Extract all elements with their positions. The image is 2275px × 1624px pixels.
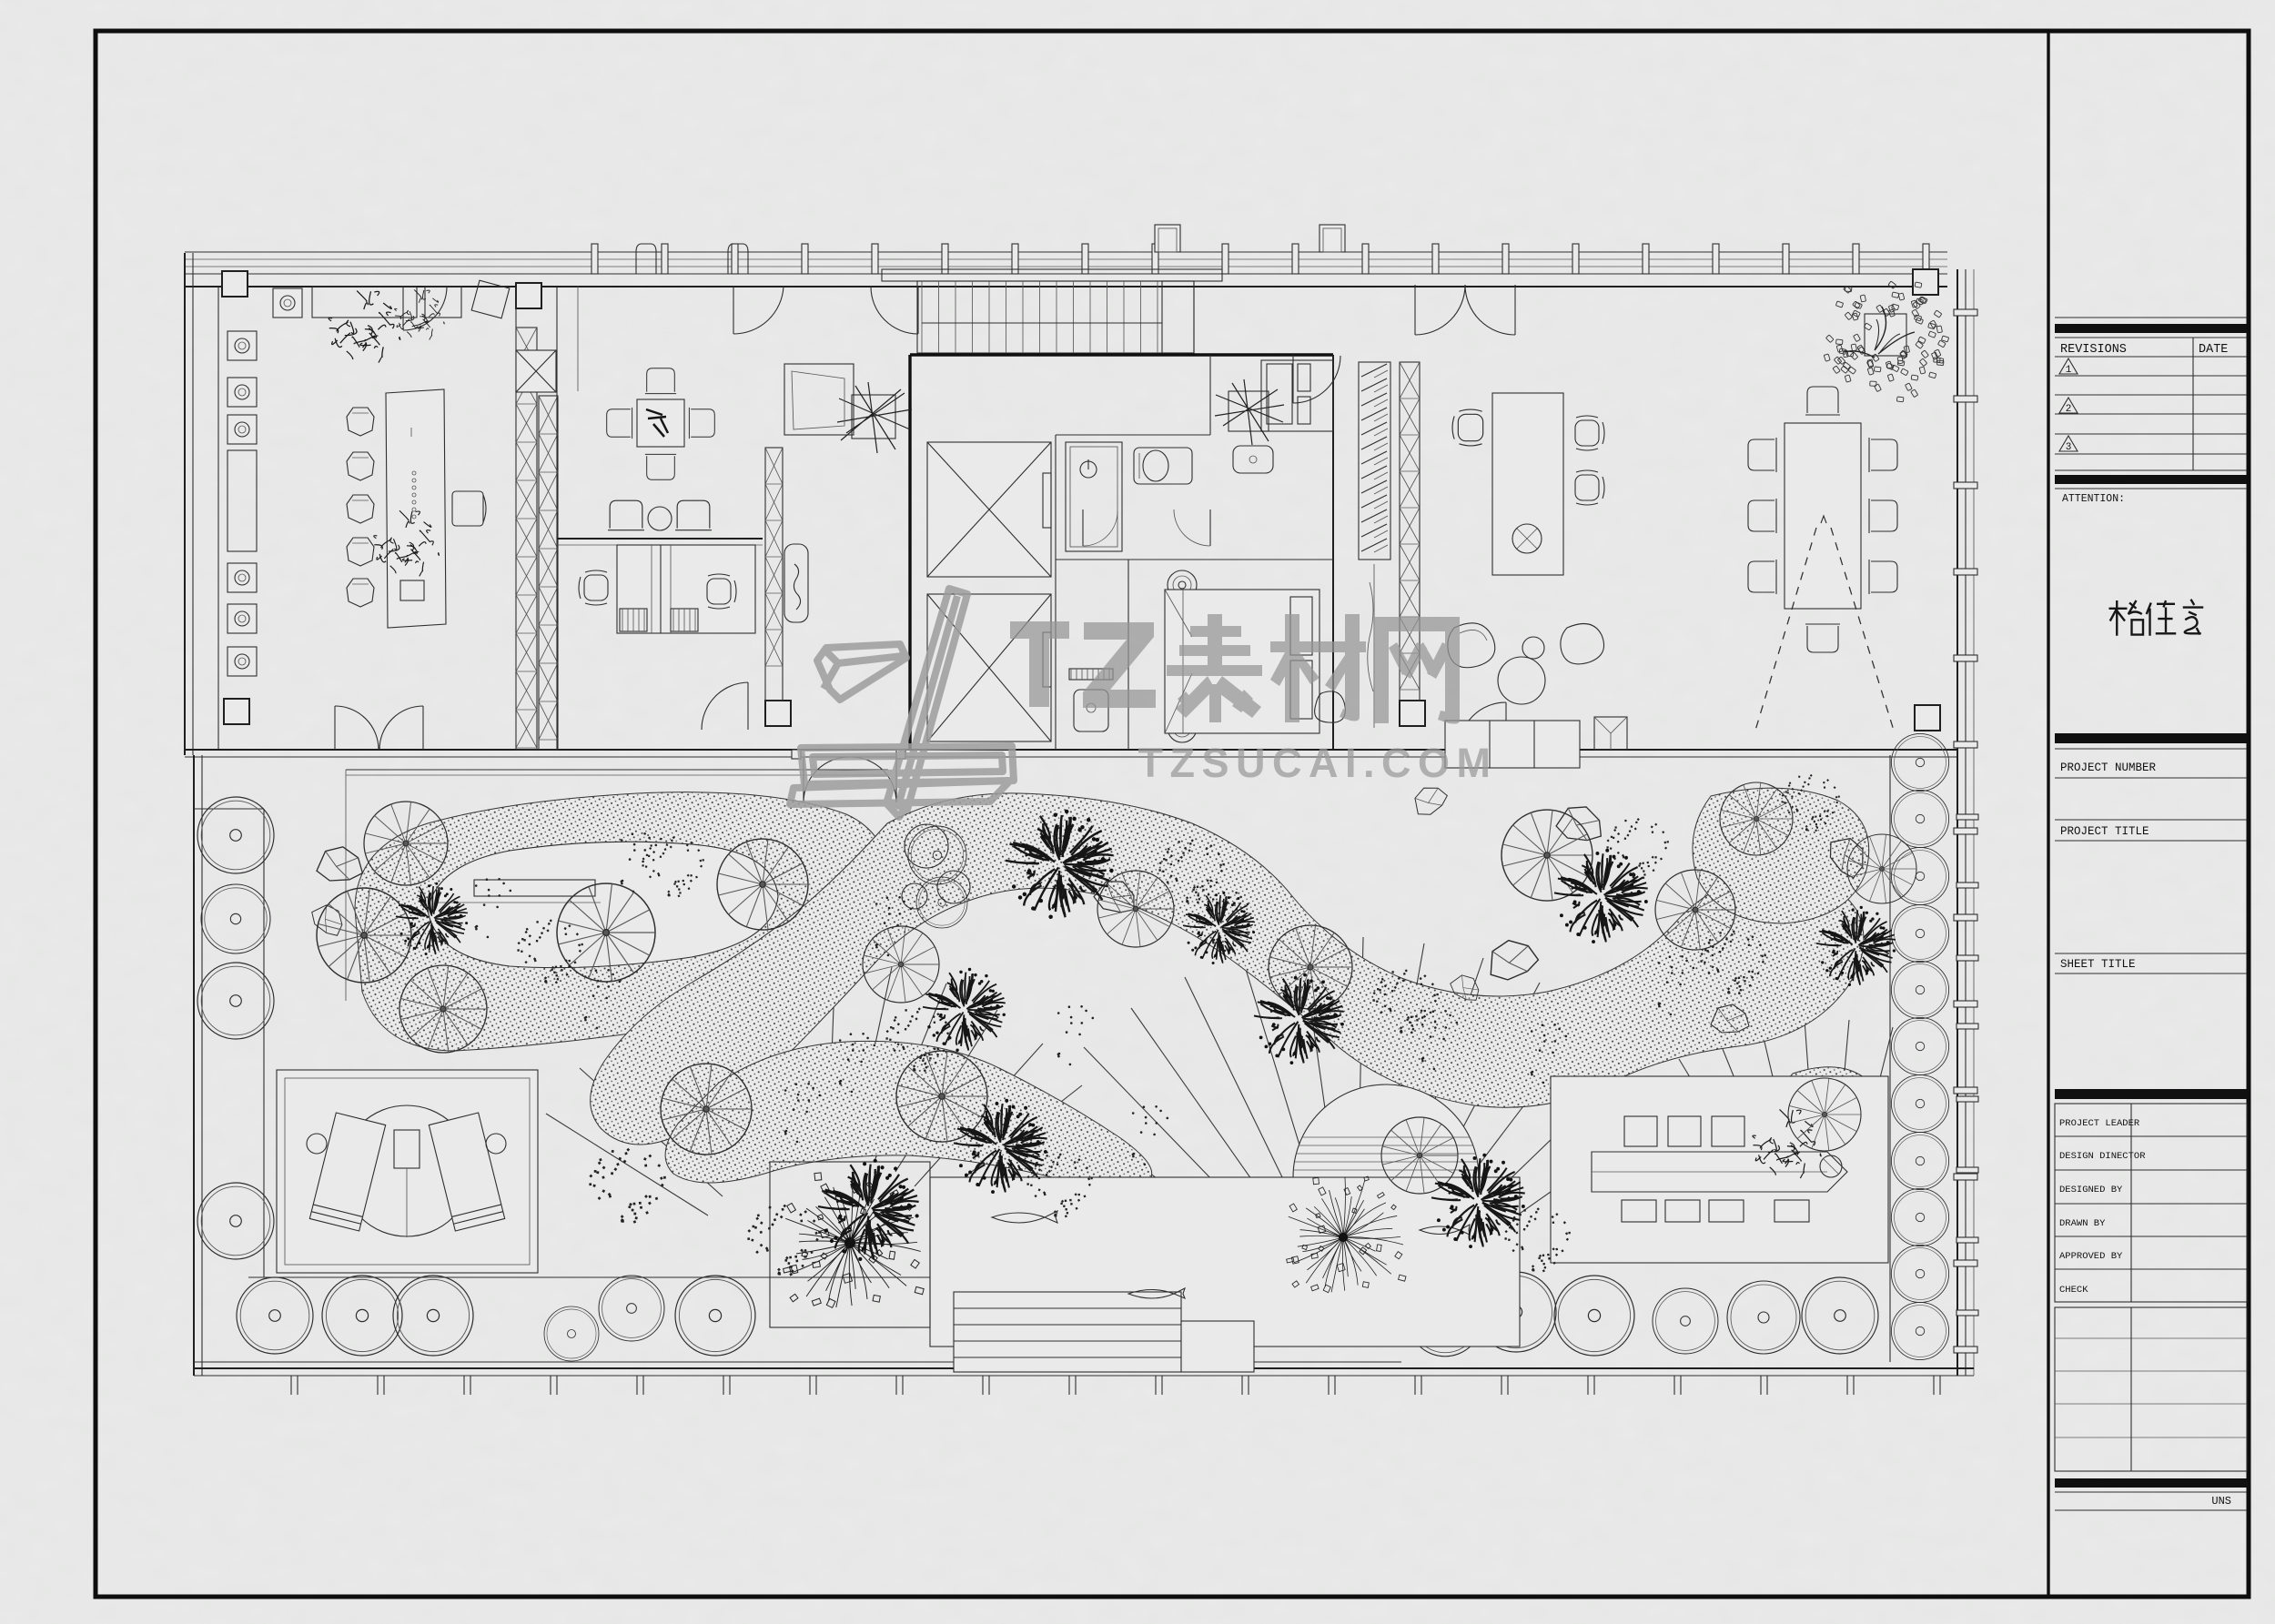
svg-text:ATTENTION:: ATTENTION:	[2062, 493, 2125, 505]
svg-text:CHECK: CHECK	[2059, 1285, 2088, 1296]
svg-text:UNS: UNS	[2211, 1495, 2231, 1508]
svg-text:3: 3	[2066, 442, 2072, 453]
svg-text:REVISIONS: REVISIONS	[2060, 343, 2127, 357]
svg-text:DRAWN BY: DRAWN BY	[2059, 1218, 2106, 1229]
svg-text:TZSUCAI.COM: TZSUCAI.COM	[1138, 740, 1498, 786]
svg-text:SHEET TITLE: SHEET TITLE	[2060, 958, 2136, 971]
svg-text:APPROVED BY: APPROVED BY	[2059, 1251, 2123, 1262]
svg-text:DATE: DATE	[2199, 343, 2228, 357]
svg-text:2: 2	[2066, 404, 2072, 415]
svg-text:PROJECT NUMBER: PROJECT NUMBER	[2060, 762, 2157, 774]
svg-text:PROJECT TITLE: PROJECT TITLE	[2060, 825, 2149, 838]
svg-text:1: 1	[2066, 365, 2072, 376]
svg-text:DESIGN DINECTOR: DESIGN DINECTOR	[2059, 1151, 2146, 1162]
svg-text:PROJECT LEADER: PROJECT LEADER	[2059, 1118, 2140, 1129]
svg-text:DESIGNED BY: DESIGNED BY	[2059, 1185, 2123, 1195]
